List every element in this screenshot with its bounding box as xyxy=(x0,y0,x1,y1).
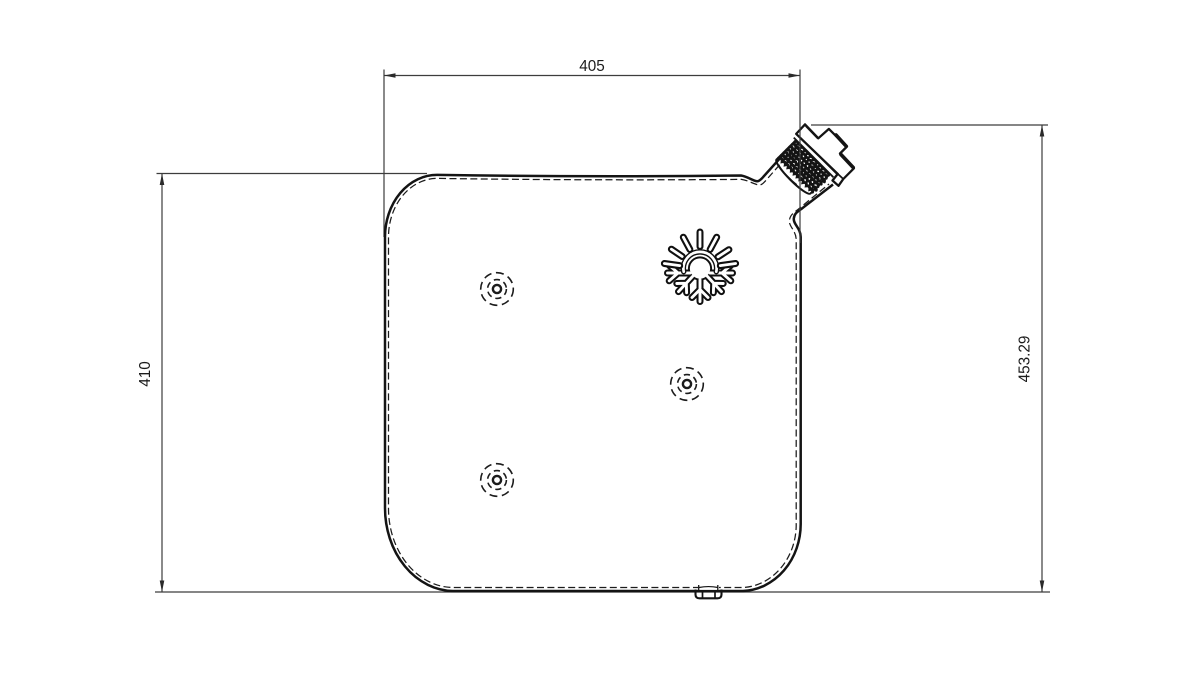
svg-text:405: 405 xyxy=(579,58,605,75)
svg-text:410: 410 xyxy=(137,361,154,387)
svg-text:453.29: 453.29 xyxy=(1017,336,1034,383)
